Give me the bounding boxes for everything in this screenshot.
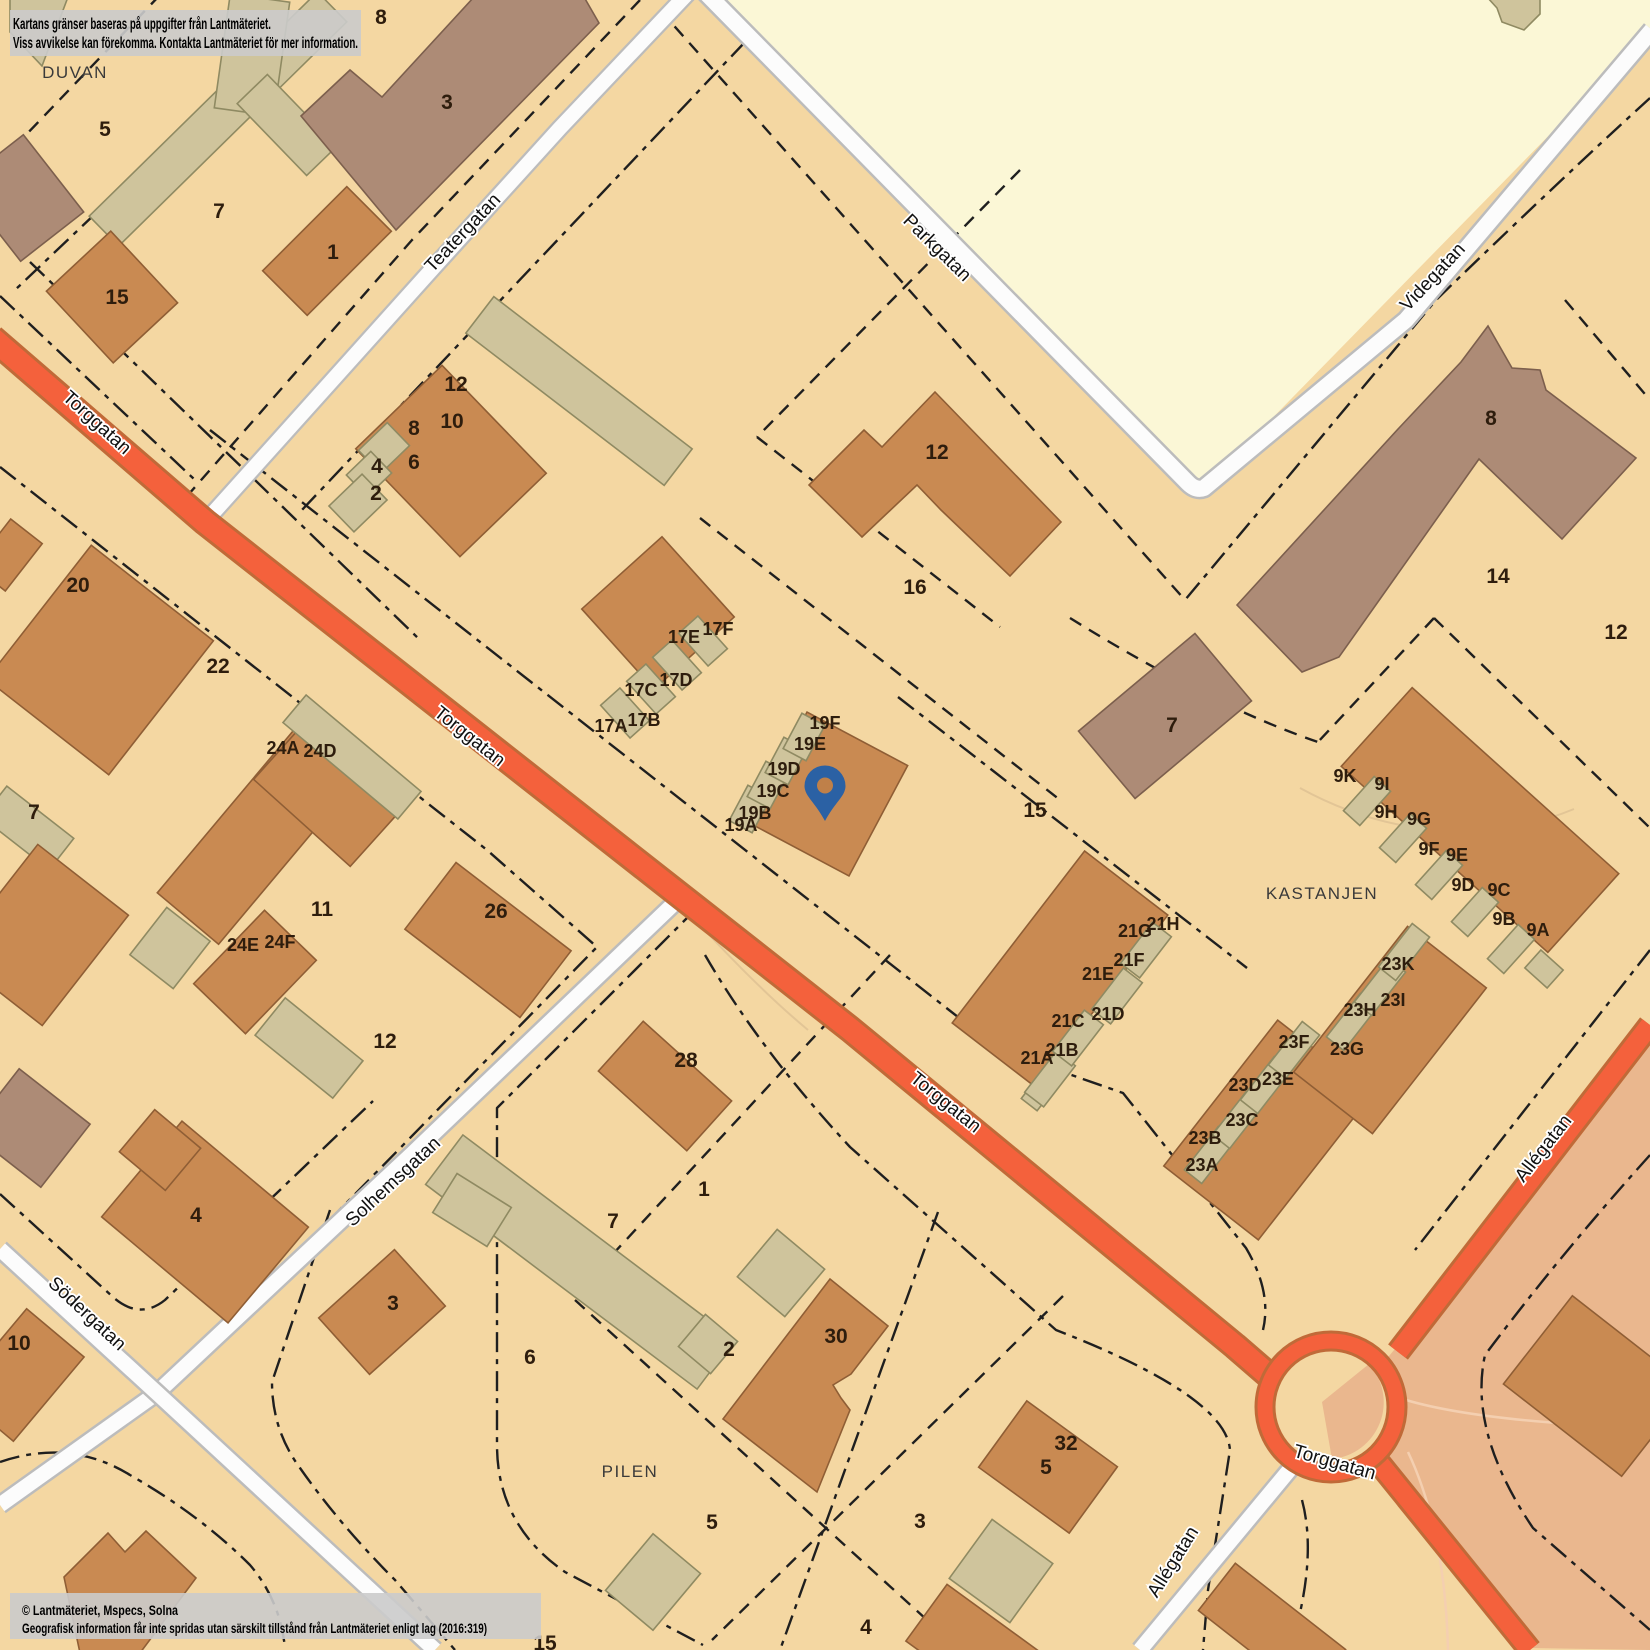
svg-text:23A: 23A (1185, 1155, 1218, 1175)
svg-text:9C: 9C (1487, 880, 1510, 900)
svg-text:1: 1 (698, 1178, 710, 1201)
svg-text:2: 2 (723, 1338, 735, 1361)
svg-text:17F: 17F (702, 619, 733, 639)
svg-text:23G: 23G (1330, 1039, 1364, 1059)
svg-text:23E: 23E (1262, 1069, 1294, 1089)
svg-text:9F: 9F (1418, 839, 1439, 859)
svg-text:21A: 21A (1020, 1048, 1053, 1068)
svg-text:23D: 23D (1228, 1075, 1261, 1095)
svg-text:12: 12 (373, 1030, 396, 1053)
svg-text:17E: 17E (668, 627, 700, 647)
svg-text:14: 14 (1486, 565, 1510, 588)
svg-text:21H: 21H (1146, 914, 1179, 934)
svg-text:17C: 17C (624, 680, 657, 700)
svg-text:22: 22 (206, 655, 229, 678)
svg-text:17A: 17A (594, 716, 627, 736)
svg-text:7: 7 (1166, 714, 1178, 737)
svg-text:19F: 19F (809, 713, 840, 733)
svg-text:4: 4 (190, 1204, 202, 1227)
svg-text:19B: 19B (738, 803, 771, 823)
svg-text:6: 6 (524, 1346, 536, 1369)
svg-text:6: 6 (408, 451, 420, 474)
svg-text:19E: 19E (794, 734, 826, 754)
svg-text:20: 20 (66, 574, 89, 597)
svg-text:9I: 9I (1374, 774, 1389, 794)
svg-text:24D: 24D (303, 741, 336, 761)
svg-text:24A: 24A (266, 738, 299, 758)
svg-text:23C: 23C (1225, 1110, 1258, 1130)
svg-text:9B: 9B (1492, 909, 1515, 929)
svg-text:5: 5 (99, 118, 111, 141)
svg-text:10: 10 (440, 410, 463, 433)
svg-text:10: 10 (7, 1332, 30, 1355)
svg-text:28: 28 (674, 1049, 698, 1072)
svg-text:3: 3 (914, 1510, 926, 1533)
svg-text:12: 12 (925, 441, 948, 464)
svg-text:24F: 24F (264, 932, 295, 952)
svg-text:15: 15 (1023, 799, 1047, 822)
svg-text:12: 12 (444, 373, 467, 396)
svg-text:23K: 23K (1381, 954, 1414, 974)
svg-text:32: 32 (1054, 1432, 1077, 1455)
svg-text:21C: 21C (1051, 1011, 1084, 1031)
svg-text:1: 1 (327, 241, 339, 264)
svg-text:15: 15 (105, 286, 129, 309)
svg-text:KASTANJEN: KASTANJEN (1266, 884, 1378, 903)
svg-text:9D: 9D (1451, 875, 1474, 895)
svg-text:9A: 9A (1526, 920, 1549, 940)
svg-text:17D: 17D (659, 670, 692, 690)
svg-text:23B: 23B (1188, 1128, 1221, 1148)
svg-text:21E: 21E (1082, 964, 1114, 984)
svg-text:9H: 9H (1374, 802, 1397, 822)
svg-text:Kartans gränser baseras på upp: Kartans gränser baseras på uppgifter frå… (13, 15, 271, 33)
svg-text:11: 11 (311, 898, 334, 921)
svg-text:DUVAN: DUVAN (42, 63, 108, 82)
svg-text:Geografisk information får int: Geografisk information får inte spridas … (22, 1620, 487, 1636)
svg-text:9E: 9E (1446, 845, 1468, 865)
svg-text:17B: 17B (627, 710, 660, 730)
svg-text:16: 16 (903, 576, 926, 599)
svg-text:5: 5 (706, 1511, 718, 1534)
svg-text:24E: 24E (227, 935, 259, 955)
svg-text:2: 2 (370, 482, 382, 505)
svg-text:26: 26 (484, 900, 507, 923)
svg-text:4: 4 (371, 455, 383, 478)
svg-text:Viss avvikelse kan förekomma.: Viss avvikelse kan förekomma. Kontakta L… (13, 35, 358, 52)
svg-text:21D: 21D (1091, 1004, 1124, 1024)
svg-text:21F: 21F (1113, 950, 1144, 970)
svg-text:23H: 23H (1343, 1000, 1376, 1020)
svg-text:9G: 9G (1407, 809, 1431, 829)
svg-text:3: 3 (387, 1292, 399, 1315)
svg-text:7: 7 (213, 200, 225, 223)
svg-text:8: 8 (408, 417, 420, 440)
svg-text:30: 30 (824, 1325, 847, 1348)
svg-text:19D: 19D (767, 759, 800, 779)
svg-text:12: 12 (1604, 621, 1627, 644)
svg-text:23F: 23F (1278, 1032, 1309, 1052)
svg-text:7: 7 (607, 1210, 619, 1233)
svg-text:19C: 19C (756, 781, 789, 801)
svg-text:9K: 9K (1333, 766, 1356, 786)
svg-text:3: 3 (441, 91, 453, 114)
svg-text:8: 8 (375, 6, 387, 29)
svg-text:23I: 23I (1380, 990, 1405, 1010)
svg-text:4: 4 (860, 1616, 872, 1639)
svg-text:5: 5 (1040, 1456, 1052, 1479)
svg-text:8: 8 (1485, 407, 1497, 430)
svg-text:7: 7 (28, 801, 40, 824)
svg-text:© Lantmäteriet, Mspecs, Solna: © Lantmäteriet, Mspecs, Solna (22, 1602, 178, 1618)
svg-text:PILEN: PILEN (602, 1462, 659, 1481)
